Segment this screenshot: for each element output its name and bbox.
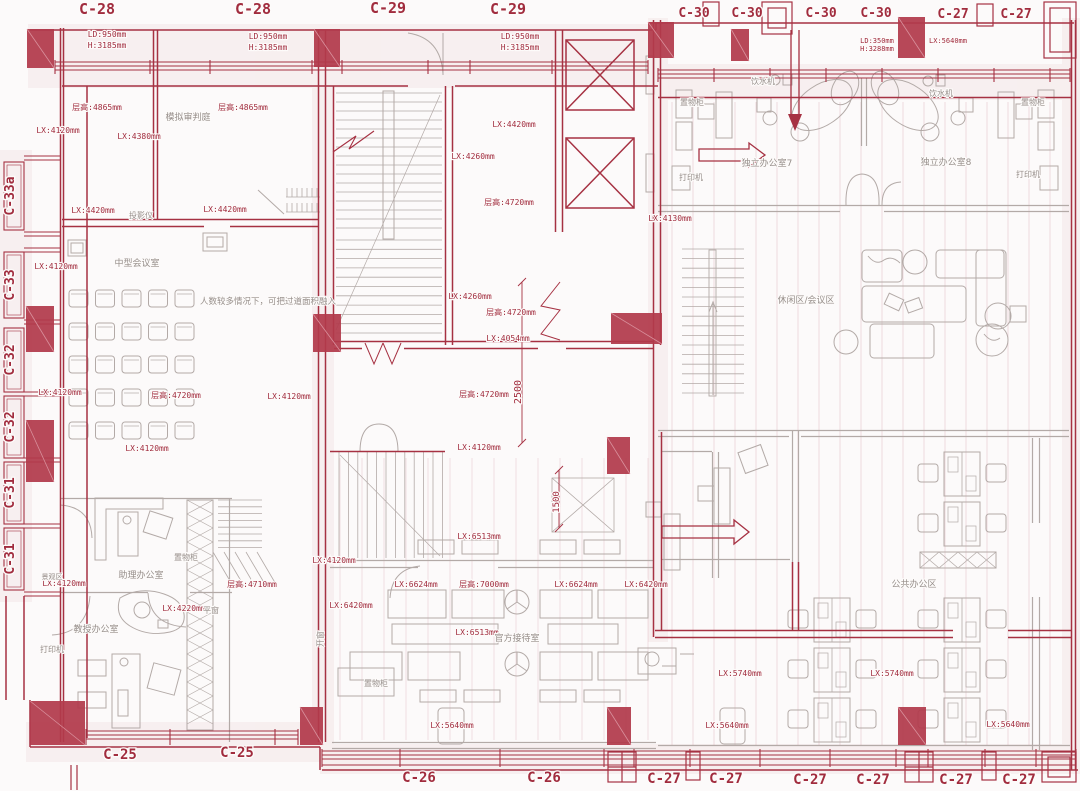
grid-label-bottom: C-27 <box>647 771 681 787</box>
grid-label-left: C-33 <box>3 269 18 300</box>
room-label: 官方接待室 <box>494 632 539 644</box>
dimension-label: LD:350mm <box>860 37 894 45</box>
dimension-label: 层高:4720mm <box>151 390 201 400</box>
room-label: 公共办公区 <box>891 578 936 590</box>
grid-label-top: C-30 <box>805 6 836 21</box>
room-label: 置物柜 <box>680 97 704 107</box>
grid-label-bottom: C-25 <box>103 747 137 763</box>
room-label: 独立办公室7 <box>742 157 793 169</box>
grid-label-top: C-30 <box>731 6 762 21</box>
dimension-label: LX:6420mm <box>624 580 668 589</box>
dimension-label: LX:5640mm <box>430 721 474 730</box>
grid-label-top: C-28 <box>235 0 271 18</box>
dimension-label: 层高:4865mm <box>72 102 122 112</box>
dimension-label: LX:5740mm <box>718 669 762 678</box>
grid-label-top: C-28 <box>79 0 115 18</box>
dimension-label: LD:950mm <box>501 32 540 41</box>
dimension-label: 1500 <box>552 491 562 513</box>
dimension-label: 层高:4720mm <box>486 307 536 317</box>
dimension-label: LX:6513mm <box>457 532 501 541</box>
grid-label-left: C-33a <box>3 176 18 215</box>
room-label: 独立办公室8 <box>921 156 972 168</box>
dimension-label: 层高:4720mm <box>459 389 509 399</box>
room-label: 饮水机 <box>751 76 775 86</box>
grid-label-left: C-31 <box>3 477 18 508</box>
grid-label-top: C-29 <box>490 0 526 18</box>
dimension-label: LX:4120mm <box>34 262 78 271</box>
dimension-label: LX:4120mm <box>267 392 311 401</box>
grid-label-top: C-27 <box>1000 7 1031 22</box>
grid-label-top: C-30 <box>678 6 709 21</box>
grid-label-top: C-30 <box>860 6 891 21</box>
dimension-label: LX:5640mm <box>986 720 1030 729</box>
dimension-label: LX:6420mm <box>329 601 373 610</box>
dimension-label: LD:950mm <box>88 30 127 39</box>
room-label: 开窗 <box>315 631 325 647</box>
grid-label-bottom: C-27 <box>793 772 827 788</box>
grid-label-bottom: C-26 <box>402 770 436 786</box>
room-label: 景观区 <box>42 573 63 581</box>
room-label: 置物柜 <box>364 678 388 688</box>
dimension-label: LX:4054mm <box>486 334 530 343</box>
grid-label-left: C-32 <box>3 344 18 375</box>
floor-plan-screenshot: C-28C-28C-29C-29C-30C-30C-30C-30C-27C-27… <box>0 0 1080 791</box>
dimension-label: LX:4420mm <box>492 120 536 129</box>
grid-label-left: C-31 <box>3 543 18 574</box>
dimension-label: LX:4420mm <box>203 205 247 214</box>
room-label: 打印机 <box>40 644 64 654</box>
dimension-label: LX:4120mm <box>312 556 356 565</box>
dimension-label: LX:4420mm <box>71 206 115 215</box>
dimension-label: H:3185mm <box>501 43 540 52</box>
room-label: 平窗 <box>203 605 219 615</box>
room-label: 饮水机 <box>929 88 953 98</box>
room-label: 打印机 <box>679 172 703 182</box>
grid-label-top: C-27 <box>937 7 968 22</box>
grid-label-bottom: C-27 <box>709 771 743 787</box>
dimension-label: LX:4120mm <box>125 444 169 453</box>
dimension-label: LX:4260mm <box>448 292 492 301</box>
room-label: 休闲区/会议区 <box>777 294 834 306</box>
dimension-label: H:3185mm <box>88 41 127 50</box>
dimension-label: 层高:4720mm <box>484 197 534 207</box>
dimension-label: LX:6624mm <box>394 580 438 589</box>
grid-label-left: C-32 <box>3 411 18 442</box>
dimension-label: H:3185mm <box>249 43 288 52</box>
dimension-label: LX:4220mm <box>162 604 206 613</box>
grid-label-bottom: C-27 <box>856 772 890 788</box>
dimension-label: 层高:4710mm <box>227 579 277 589</box>
grid-label-bottom: C-27 <box>1002 772 1036 788</box>
dimension-label: LX:5740mm <box>870 669 914 678</box>
grid-label-bottom: C-25 <box>220 745 254 761</box>
grid-label-bottom: C-26 <box>527 770 561 786</box>
dimension-label: LX:5640mm <box>705 721 749 730</box>
dimension-label: LX:4120mm <box>38 388 82 397</box>
floor-plan-canvas: C-28C-28C-29C-29C-30C-30C-30C-30C-27C-27… <box>0 0 1080 791</box>
dimension-label: LX:4260mm <box>451 152 495 161</box>
room-label: 投影仪 <box>129 210 153 220</box>
room-label: 置物柜 <box>1021 97 1045 107</box>
dimension-label: LD:950mm <box>249 32 288 41</box>
dimension-label: LX:4130mm <box>648 214 692 223</box>
dimension-label: LX:4380mm <box>117 132 161 141</box>
grid-label-top: C-29 <box>370 0 406 17</box>
dimension-label: LX:4120mm <box>457 443 501 452</box>
dimension-label: 2500 <box>513 380 524 404</box>
dimension-label: LX:4120mm <box>36 126 80 135</box>
grid-label-bottom: C-27 <box>939 772 973 788</box>
dimension-label: LX:6513mm <box>455 628 499 637</box>
room-label: 教授办公室 <box>73 623 118 635</box>
room-label: 人数较多情况下，可把过道面积融入 <box>200 296 337 307</box>
dimension-label: 层高:4865mm <box>218 102 268 112</box>
dimension-label: LX:5640mm <box>929 37 967 45</box>
dimension-label: H:3288mm <box>860 45 894 53</box>
dimension-label: 层高:7000mm <box>459 579 509 589</box>
room-label: 中型会议室 <box>114 257 159 269</box>
room-label: 助理办公室 <box>118 569 163 581</box>
room-label: 置物柜 <box>174 552 198 562</box>
room-label: 模拟审判庭 <box>165 111 210 123</box>
room-label: 打印机 <box>1016 169 1040 179</box>
dimension-label: LX:6624mm <box>554 580 598 589</box>
